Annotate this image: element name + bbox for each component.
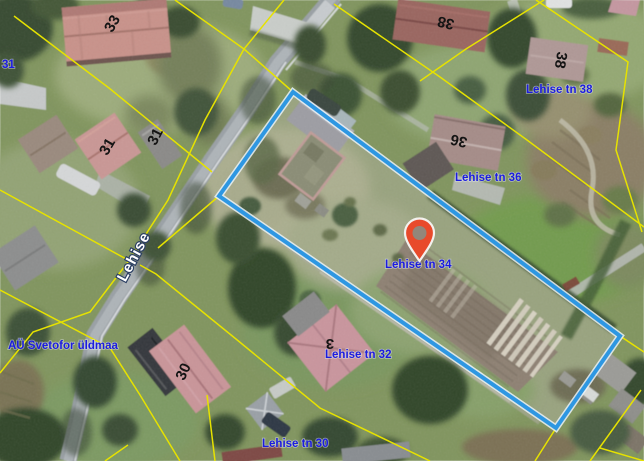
svg-text:AÜ Svetofor üldmaa: AÜ Svetofor üldmaa	[8, 339, 119, 352]
svg-text:Lehise tn 36: Lehise tn 36	[455, 172, 521, 184]
svg-text:Lehise tn 38: Lehise tn 38	[526, 84, 593, 96]
svg-text:38: 38	[551, 50, 571, 69]
svg-text:31: 31	[2, 59, 15, 71]
svg-text:Lehise tn 32: Lehise tn 32	[325, 349, 391, 361]
svg-text:Lehise tn 30: Lehise tn 30	[262, 438, 328, 450]
